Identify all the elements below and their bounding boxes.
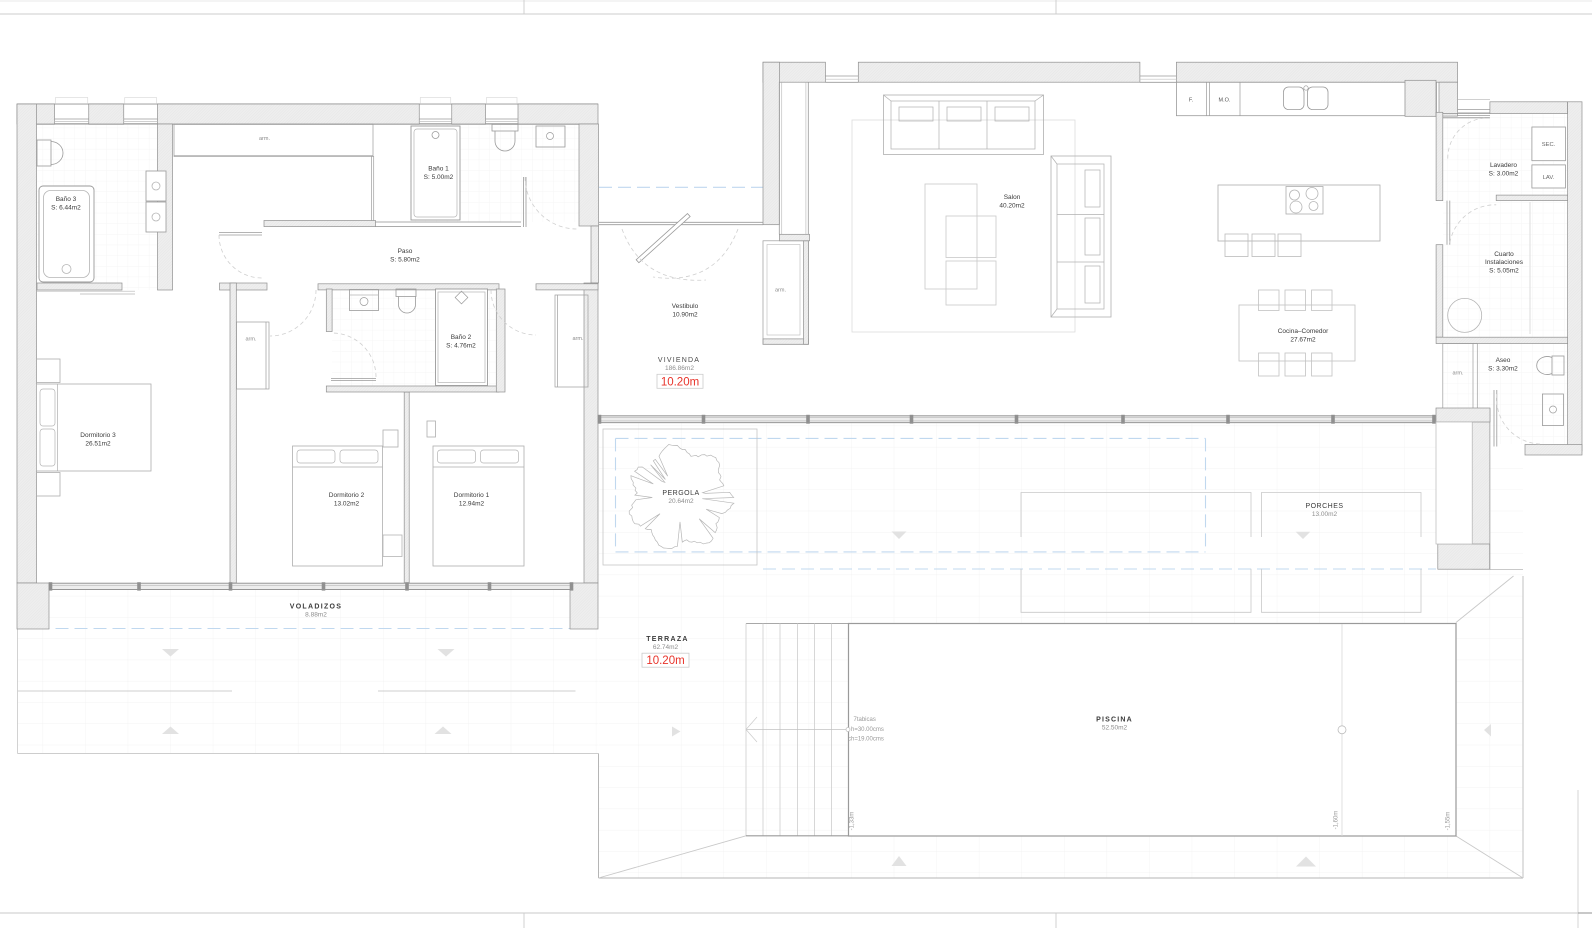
svg-text:VIVIENDA: VIVIENDA [658, 357, 700, 364]
svg-text:S: 4.76m2: S: 4.76m2 [446, 343, 476, 350]
svg-text:Instalaciones: Instalaciones [1485, 259, 1524, 266]
svg-text:S: 3.30m2: S: 3.30m2 [1488, 366, 1518, 373]
svg-text:PERGOLA: PERGOLA [662, 490, 699, 497]
svg-text:S: 5.00m2: S: 5.00m2 [424, 174, 454, 181]
svg-text:S: 3.00m2: S: 3.00m2 [1489, 171, 1519, 178]
svg-text:186.86m2: 186.86m2 [665, 365, 694, 372]
svg-text:10.90m2: 10.90m2 [672, 312, 698, 319]
svg-text:12.94m2: 12.94m2 [459, 501, 485, 508]
svg-text:arm.: arm. [259, 136, 270, 142]
svg-text:27.67m2: 27.67m2 [1290, 337, 1316, 344]
svg-text:Lavadero: Lavadero [1490, 162, 1517, 169]
svg-text:10.20m: 10.20m [661, 376, 699, 388]
svg-text:S: 5.05m2: S: 5.05m2 [1489, 268, 1519, 275]
svg-text:S: 5.80m2: S: 5.80m2 [390, 257, 420, 264]
svg-text:M.O.: M.O. [1219, 98, 1231, 104]
svg-text:Paso: Paso [398, 248, 413, 255]
svg-text:LAV.: LAV. [1543, 175, 1555, 181]
svg-text:Dormitorio 1: Dormitorio 1 [454, 492, 490, 499]
svg-text:Baño 3: Baño 3 [56, 196, 77, 203]
svg-text:-1,33m: -1,33m [850, 812, 856, 831]
svg-text:62.74m2: 62.74m2 [653, 644, 679, 651]
svg-text:TERRAZA: TERRAZA [646, 636, 689, 643]
svg-text:13.00m2: 13.00m2 [1312, 511, 1338, 518]
svg-text:52.50m2: 52.50m2 [1102, 725, 1128, 732]
svg-text:arm.: arm. [573, 336, 584, 342]
svg-text:20.64m2: 20.64m2 [668, 498, 694, 505]
svg-text:10.20m: 10.20m [646, 655, 684, 667]
svg-text:PISCINA: PISCINA [1096, 717, 1133, 724]
svg-text:F.: F. [1189, 98, 1194, 104]
svg-text:40.20m2: 40.20m2 [999, 203, 1025, 210]
svg-text:S: 6.44m2: S: 6.44m2 [51, 205, 81, 212]
svg-text:Vestibulo: Vestibulo [672, 303, 699, 310]
svg-text:ch=19.00cms: ch=19.00cms [848, 737, 884, 743]
svg-text:7tabicas: 7tabicas [854, 717, 876, 723]
svg-text:Dormitorio 3: Dormitorio 3 [80, 432, 116, 439]
svg-text:-1,55m: -1,55m [1446, 812, 1452, 831]
svg-text:Baño 1: Baño 1 [428, 166, 449, 173]
svg-text:26.51m2: 26.51m2 [85, 441, 111, 448]
svg-text:Baño 2: Baño 2 [451, 334, 472, 341]
svg-text:VOLADIZOS: VOLADIZOS [290, 604, 343, 611]
svg-text:arm.: arm. [775, 288, 786, 294]
svg-text:Aseo: Aseo [1496, 357, 1511, 364]
svg-text:arm.: arm. [1453, 371, 1464, 377]
svg-text:Cocina–Comedor: Cocina–Comedor [1278, 328, 1329, 335]
svg-text:Salon: Salon [1004, 194, 1021, 201]
svg-text:13.02m2: 13.02m2 [334, 501, 360, 508]
svg-text:-1,60m: -1,60m [1334, 811, 1340, 830]
svg-text:arm.: arm. [246, 337, 257, 343]
svg-text:h=30.00cms: h=30.00cms [851, 727, 884, 733]
svg-text:Cuarto: Cuarto [1494, 251, 1514, 258]
svg-text:SEC.: SEC. [1542, 142, 1556, 148]
svg-text:PORCHES: PORCHES [1305, 503, 1343, 510]
svg-text:8.88m2: 8.88m2 [305, 612, 327, 619]
svg-text:Dormitorio 2: Dormitorio 2 [329, 492, 365, 499]
